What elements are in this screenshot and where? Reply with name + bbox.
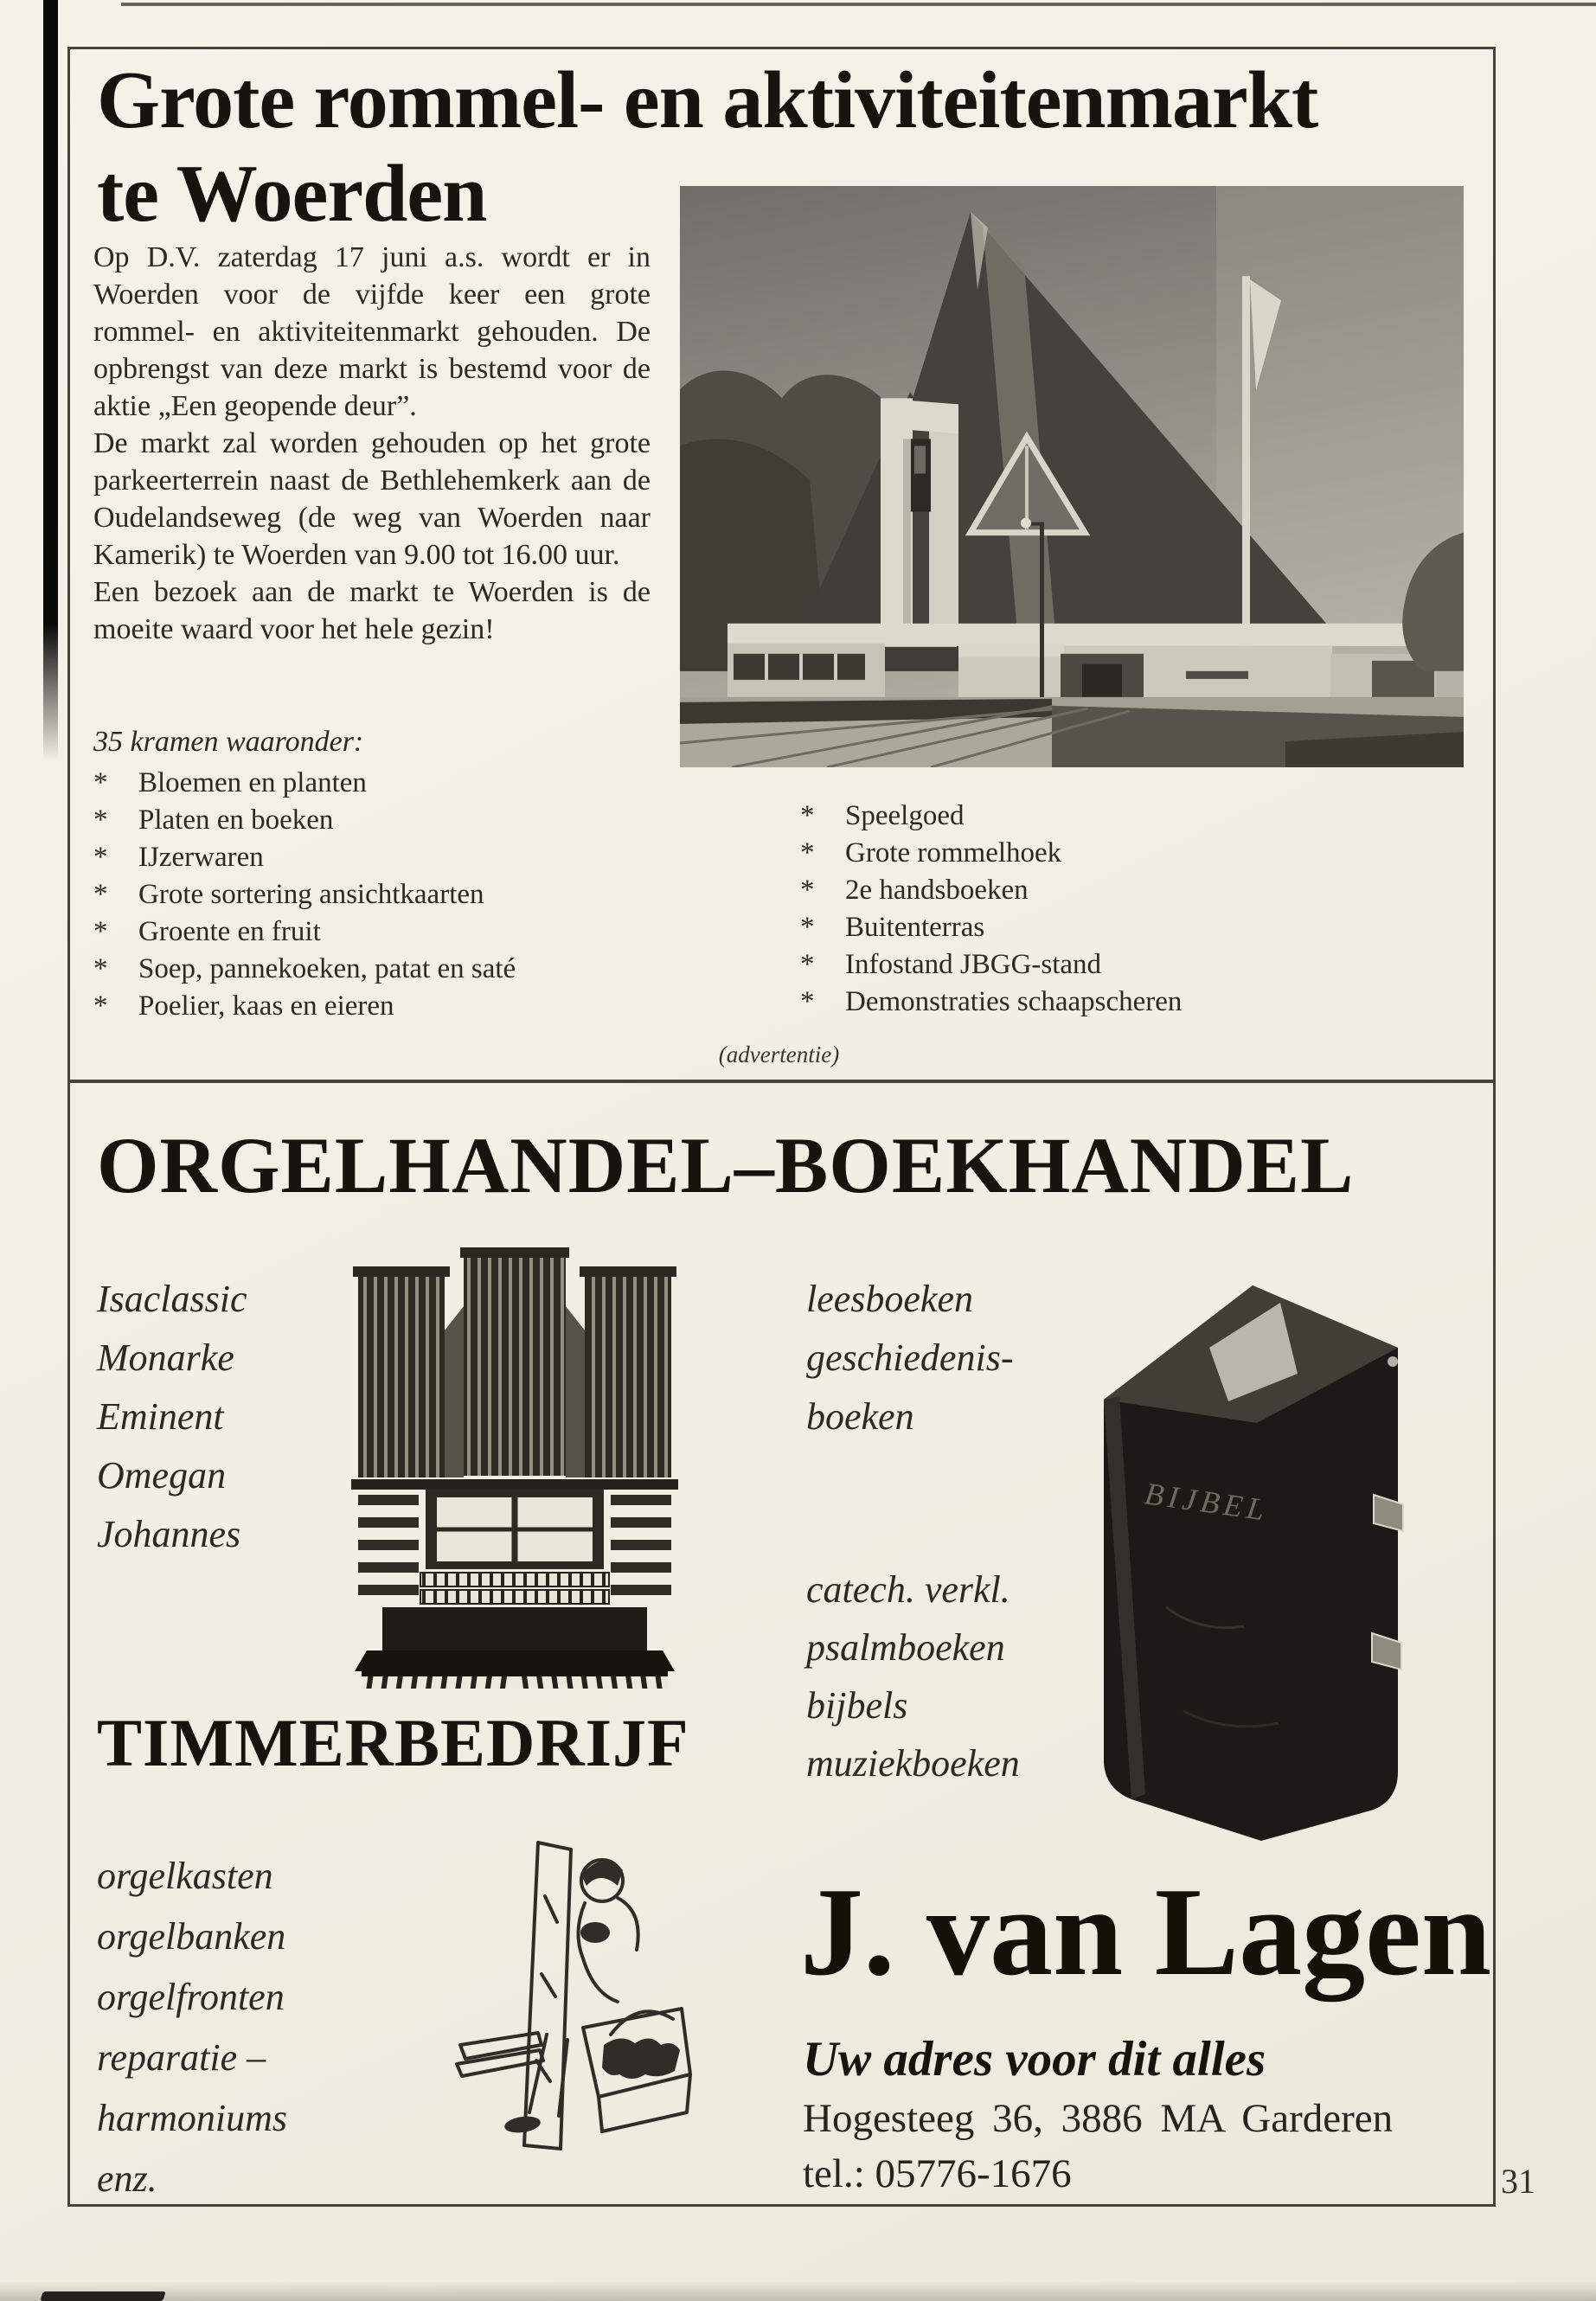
stall-item: *Speelgoed: [800, 798, 1182, 835]
stall-item-label: 2e handsboeken: [845, 875, 1029, 906]
stall-item-label: IJzerwaren: [138, 842, 264, 873]
book-type: geschiedenis-: [806, 1329, 1013, 1388]
stall-item-label: Groente en fruit: [138, 916, 321, 947]
stall-item: *Grote sortering ansichtkaarten: [93, 876, 516, 913]
ad-headline-dash: –: [734, 1119, 775, 1211]
company-address: Hogesteeg 36, 3886 MA Garderen: [803, 2095, 1393, 2142]
carpentry-service: orgelkasten: [97, 1846, 287, 1907]
article-paragraph: Een bezoek aan de markt te Woerden is de…: [93, 574, 651, 648]
book-type-list-top: leesboeken geschiedenis- boeken: [806, 1270, 1013, 1446]
stall-item-label: Grote sortering ansichtkaarten: [138, 879, 484, 910]
stall-item: *Demonstraties schaapscheren: [800, 984, 1182, 1021]
book-type: muziekboeken: [806, 1734, 1020, 1792]
stall-item: *Platen en boeken: [93, 802, 516, 839]
timmerbedrijf-headline: TIMMERBEDRIJF: [97, 1704, 689, 1782]
asterisk-bullet: *: [93, 876, 138, 913]
binding-shadow-bar: [43, 0, 58, 761]
organ-brand: Johannes: [97, 1505, 247, 1564]
stall-item-label: Demonstraties schaapscheren: [845, 986, 1182, 1017]
page-top-rule: [121, 3, 1596, 6]
article-body: Op D.V. zaterdag 17 juni a.s. wordt er i…: [93, 239, 651, 648]
asterisk-bullet: *: [800, 909, 845, 946]
scanned-magazine-page: Grote rommel- en aktiviteitenmarkt te Wo…: [0, 0, 1596, 2301]
page-number: 31: [1501, 2161, 1535, 2202]
carpentry-service: harmoniums: [97, 2088, 287, 2149]
advert-caption: (advertentie): [67, 1042, 1490, 1068]
pipe-organ-illustration: [336, 1235, 694, 1689]
stall-item: *Groente en fruit: [93, 913, 516, 951]
stall-item-label: Infostand JBGG-stand: [845, 949, 1101, 980]
asterisk-bullet: *: [800, 798, 845, 835]
stall-item-label: Bloemen en planten: [138, 767, 367, 798]
carpentry-service-list: orgelkasten orgelbanken orgelfronten rep…: [97, 1846, 287, 2209]
stall-item: *Poelier, kaas en eieren: [93, 988, 516, 1025]
asterisk-bullet: *: [800, 984, 845, 1021]
stall-item: *Soep, pannekoeken, patat en saté: [93, 951, 516, 988]
asterisk-bullet: *: [800, 835, 845, 872]
book-type: bijbels: [806, 1676, 1020, 1734]
article-title-line1: Grote rommel- en aktiviteitenmarkt: [97, 54, 1498, 147]
stall-item-label: Speelgoed: [845, 800, 964, 831]
book-type: psalmboeken: [806, 1618, 1020, 1676]
article-paragraph: De markt zal worden gehouden op het grot…: [93, 425, 651, 574]
scan-smudge: [40, 2291, 166, 2301]
ad-headline: ORGELHANDEL – BOEKHANDEL: [97, 1119, 1325, 1211]
stall-item: *Buitenterras: [800, 909, 1182, 946]
asterisk-bullet: *: [93, 913, 138, 951]
stalls-list-left: *Bloemen en planten *Platen en boeken *I…: [93, 765, 516, 1025]
stall-item-label: Grote rommelhoek: [845, 837, 1061, 868]
organ-brand: Isaclassic: [97, 1270, 247, 1329]
stalls-list-right: *Speelgoed *Grote rommelhoek *2e handsbo…: [800, 798, 1182, 1021]
bethlehemkerk-photo: [680, 186, 1464, 767]
book-type-list-bottom: catech. verkl. psalmboeken bijbels muzie…: [806, 1561, 1020, 1792]
stall-item: *Grote rommelhoek: [800, 835, 1182, 872]
organ-brand: Monarke: [97, 1329, 247, 1388]
section-divider-rule: [67, 1080, 1496, 1083]
stall-item-label: Poelier, kaas en eieren: [138, 990, 394, 1022]
bible-book-illustration: BIJBEL: [1080, 1244, 1422, 1843]
stall-item-label: Buitenterras: [845, 912, 984, 943]
company-tagline: Uw adres voor dit alles: [803, 2031, 1266, 2087]
page-bottom-shadow: [0, 2282, 1596, 2301]
asterisk-bullet: *: [93, 765, 138, 802]
stall-item: *Bloemen en planten: [93, 765, 516, 802]
organ-brand: Eminent: [97, 1388, 247, 1446]
asterisk-bullet: *: [800, 946, 845, 984]
asterisk-bullet: *: [800, 872, 845, 909]
carpentry-service: enz.: [97, 2149, 287, 2209]
asterisk-bullet: *: [93, 839, 138, 876]
article-paragraph: Op D.V. zaterdag 17 juni a.s. wordt er i…: [93, 239, 651, 425]
asterisk-bullet: *: [93, 802, 138, 839]
book-type: catech. verkl.: [806, 1561, 1020, 1618]
company-phone: tel.: 05776-1676: [803, 2150, 1072, 2197]
book-type: leesboeken: [806, 1270, 1013, 1329]
stall-item: *2e handsboeken: [800, 872, 1182, 909]
asterisk-bullet: *: [93, 988, 138, 1025]
carpentry-service: orgelbanken: [97, 1907, 287, 1967]
stalls-list-intro: 35 kramen waaronder:: [93, 726, 363, 759]
asterisk-bullet: *: [93, 951, 138, 988]
carpentry-service: orgelfronten: [97, 1967, 287, 2028]
ad-headline-orgelhandel: ORGELHANDEL: [97, 1119, 734, 1211]
ad-headline-boekhandel: BOEKHANDEL: [775, 1119, 1354, 1211]
stall-item-label: Soep, pannekoeken, patat en saté: [138, 953, 516, 984]
carpentry-service: reparatie –: [97, 2028, 287, 2088]
stall-item: *Infostand JBGG-stand: [800, 946, 1182, 984]
carpenter-illustration: [455, 1827, 694, 2170]
stall-item-label: Platen en boeken: [138, 804, 333, 836]
book-type: boeken: [806, 1388, 1013, 1446]
stall-item: *IJzerwaren: [93, 839, 516, 876]
organ-brand-list: Isaclassic Monarke Eminent Omegan Johann…: [97, 1270, 247, 1564]
company-name: J. van Lagen: [800, 1867, 1491, 1997]
organ-brand: Omegan: [97, 1446, 247, 1505]
